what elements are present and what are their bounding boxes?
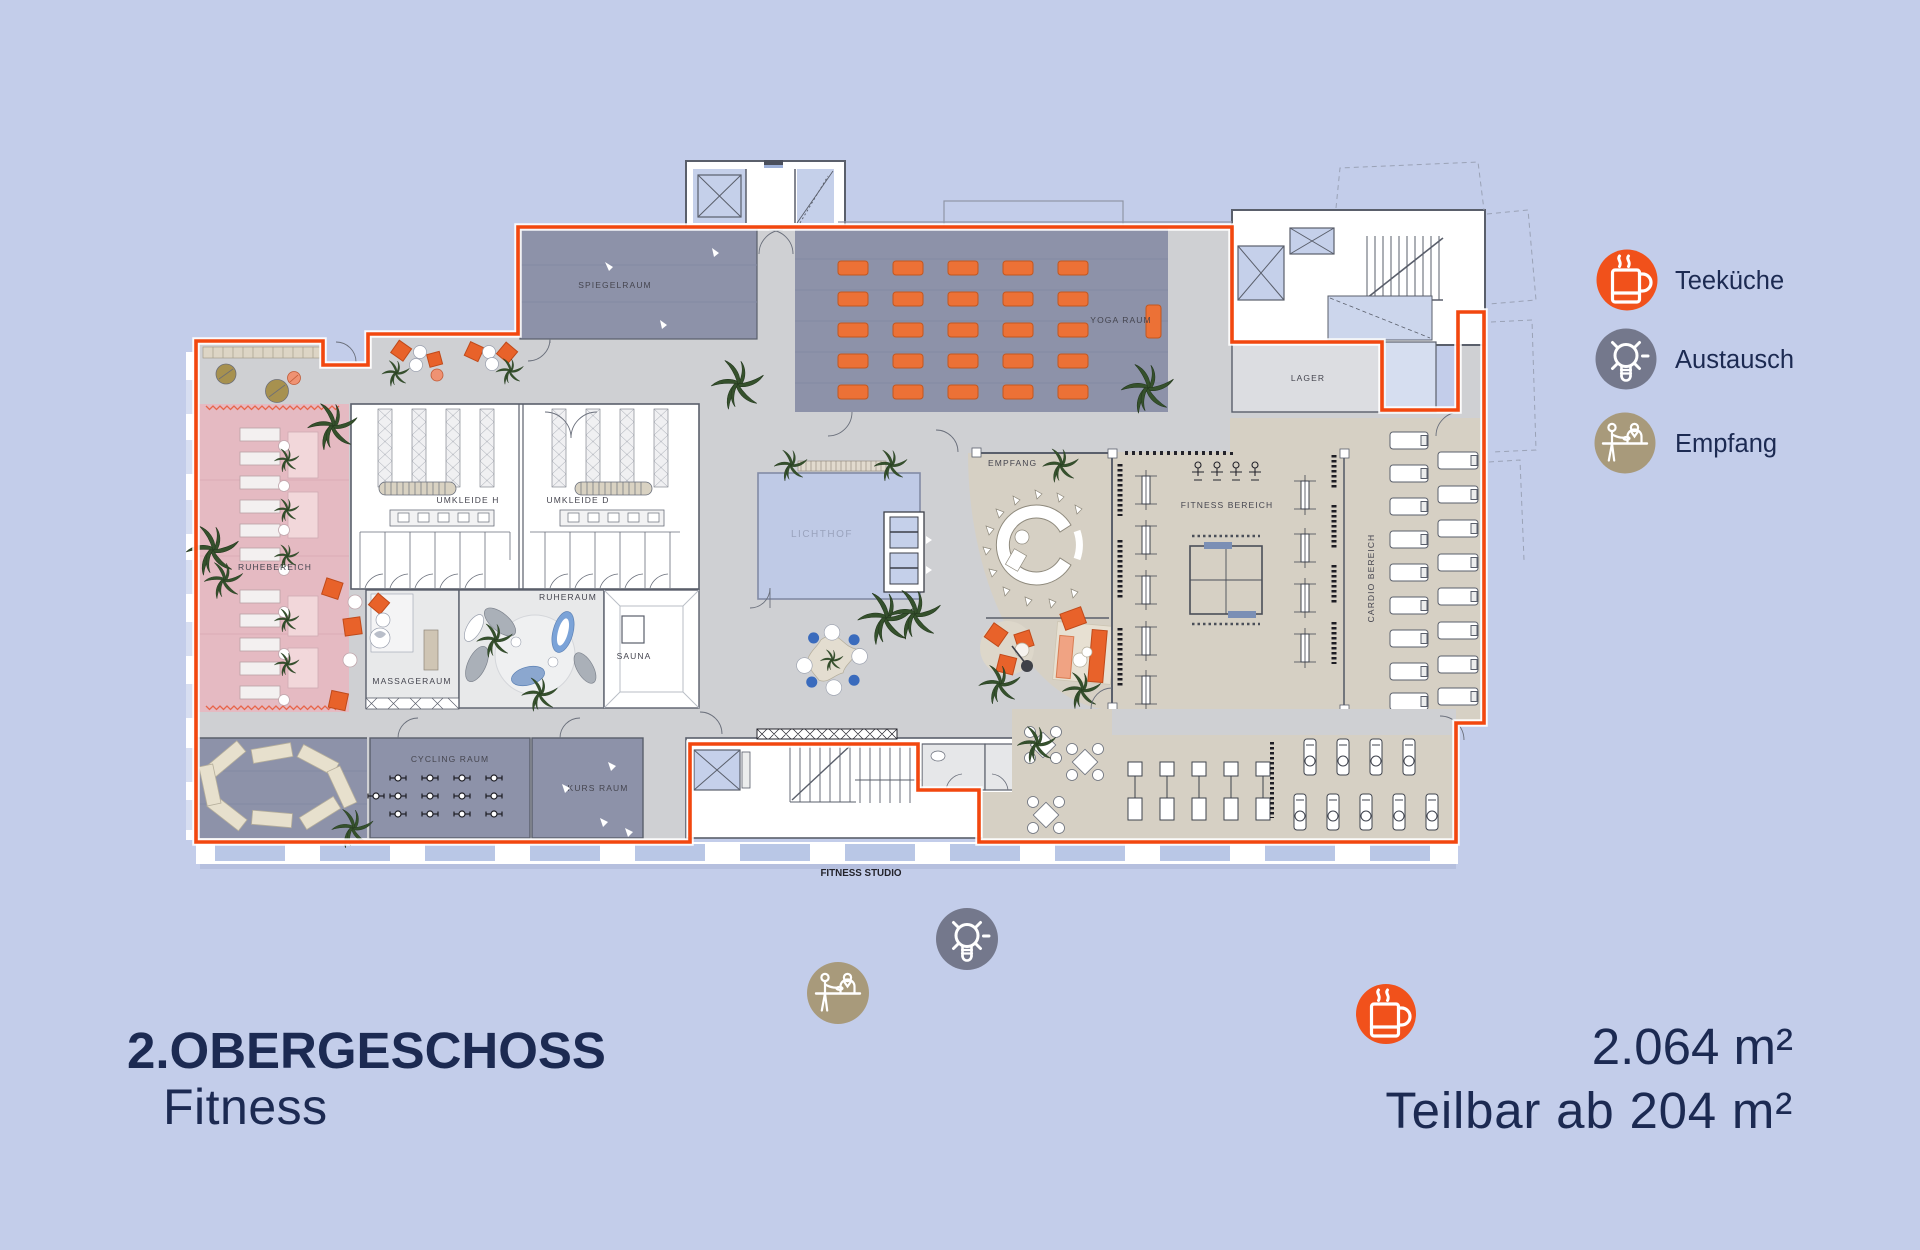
svg-text:RUHEBEREICH: RUHEBEREICH [238, 562, 312, 572]
svg-text:EMPFANG: EMPFANG [988, 458, 1037, 468]
svg-text:LICHTHOF: LICHTHOF [791, 529, 853, 540]
svg-text:UMKLEIDE H: UMKLEIDE H [437, 495, 500, 505]
svg-text:Teeküche: Teeküche [1675, 267, 1784, 295]
svg-text:KURS RAUM: KURS RAUM [568, 783, 629, 793]
svg-text:LAGER: LAGER [1291, 373, 1325, 383]
svg-text:RUHERAUM: RUHERAUM [539, 592, 597, 602]
svg-text:Austausch: Austausch [1675, 346, 1794, 374]
svg-text:2.OBERGESCHOSS: 2.OBERGESCHOSS [127, 1022, 606, 1079]
svg-text:MASSAGERAUM: MASSAGERAUM [372, 676, 451, 686]
svg-text:FITNESS BEREICH: FITNESS BEREICH [1181, 500, 1274, 510]
svg-text:CARDIO BEREICH: CARDIO BEREICH [1366, 534, 1376, 623]
svg-text:Teilbar ab 204 m²: Teilbar ab 204 m² [1385, 1082, 1793, 1139]
svg-text:FITNESS STUDIO: FITNESS STUDIO [820, 868, 901, 879]
svg-text:SAUNA: SAUNA [617, 651, 652, 661]
svg-text:YOGA RAUM: YOGA RAUM [1090, 315, 1151, 325]
svg-text:UMKLEIDE D: UMKLEIDE D [547, 495, 610, 505]
svg-text:CYCLING RAUM: CYCLING RAUM [411, 754, 489, 764]
svg-text:Empfang: Empfang [1675, 430, 1777, 458]
svg-text:2.064 m²: 2.064 m² [1592, 1018, 1793, 1075]
svg-text:SPIEGELRAUM: SPIEGELRAUM [578, 280, 652, 290]
svg-text:Fitness: Fitness [163, 1079, 328, 1135]
